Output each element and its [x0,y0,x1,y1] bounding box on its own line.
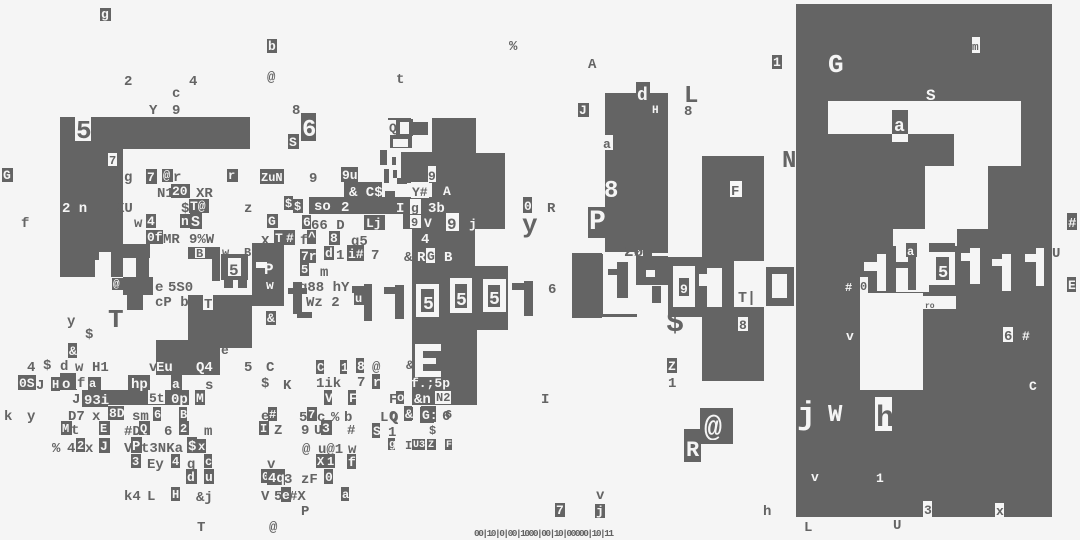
svg-text:4: 4 [172,455,179,469]
svg-text:N: N [782,148,796,175]
svg-text:I: I [260,422,267,436]
svg-text:$: $ [43,358,51,374]
svg-text:$: $ [285,197,292,211]
svg-text:d: d [60,359,68,375]
svg-text:f: f [348,455,356,470]
svg-text:S: S [191,214,200,231]
svg-text:XU: XU [116,201,133,217]
svg-text:T: T [108,305,124,335]
svg-text:MR: MR [163,232,180,248]
svg-text:e: e [155,280,163,296]
svg-text:9: 9 [309,171,317,187]
svg-text:so: so [314,199,331,215]
svg-text:v: v [846,329,854,344]
svg-text:2 n: 2 n [62,201,87,217]
svg-text:5: 5 [76,116,92,146]
svg-text:2: 2 [341,200,349,216]
svg-text:L: L [380,410,388,426]
svg-text:F: F [731,184,739,200]
svg-text:t: t [396,72,404,88]
svg-text:x: x [85,441,94,457]
svg-text:f: f [21,216,29,232]
svg-text:P: P [264,261,274,279]
svg-text:$: $ [85,327,93,343]
svg-text:I: I [541,392,549,408]
svg-text:1: 1 [336,248,344,264]
svg-text:d: d [637,86,648,106]
svg-text:R: R [686,438,700,463]
svg-text:m: m [320,265,328,281]
svg-text:2: 2 [180,422,187,436]
svg-text:y: y [67,314,76,330]
svg-text:#: # [1068,216,1076,232]
svg-text:4: 4 [27,360,35,376]
svg-text:9%W: 9%W [189,232,215,248]
svg-text:Q: Q [140,422,147,436]
svg-text:6: 6 [164,424,172,440]
svg-text:0: 0 [325,470,333,485]
svg-text:&: & [404,250,413,266]
svg-text:o: o [397,391,404,405]
svg-text:C: C [317,361,324,375]
svg-text:n: n [181,214,189,229]
svg-text:J: J [579,103,587,118]
svg-text:w: w [404,153,411,165]
svg-text:@: @ [113,279,120,291]
svg-text:y: y [27,409,36,425]
svg-text:5: 5 [938,264,948,283]
svg-text:&: & [405,407,413,422]
svg-text:Q: Q [390,410,398,426]
svg-text:h: h [876,402,894,436]
svg-text:R: R [417,250,426,266]
svg-text:9: 9 [172,103,180,119]
svg-text:Q: Q [389,121,397,136]
svg-text:g: g [411,201,419,216]
svg-text:Z: Z [668,359,676,374]
svg-text:6: 6 [548,282,556,298]
svg-text:v: v [149,360,158,376]
svg-text:4: 4 [147,214,155,229]
svg-text:u: u [205,470,213,485]
svg-text:G: G [828,50,844,80]
svg-text:i#: i# [348,247,364,262]
svg-text:w: w [134,216,143,232]
svg-text:8: 8 [330,231,338,246]
svg-text:6: 6 [445,408,452,422]
svg-text:cP b: cP b [155,295,189,311]
svg-text:6: 6 [1004,329,1012,345]
svg-text:9: 9 [301,423,309,439]
svg-text:$: $ [666,307,684,341]
svg-text:S: S [289,135,297,150]
svg-text:A: A [443,184,451,199]
svg-text:h: h [763,504,771,520]
svg-text:0S: 0S [19,376,35,391]
svg-text:T@: T@ [190,199,206,214]
svg-text:H: H [172,488,179,502]
svg-text:k4: k4 [124,489,141,505]
svg-text:H: H [52,378,59,392]
svg-text:T|: T| [738,290,756,307]
svg-text:R: R [547,201,556,217]
svg-text:z: z [244,201,252,217]
svg-text:I: I [405,439,412,453]
svg-text:@: @ [163,169,170,183]
svg-text:2: 2 [77,439,84,453]
svg-text:U: U [1052,246,1060,262]
svg-text:@: @ [267,70,276,86]
svg-text:3b: 3b [428,201,445,217]
svg-text:B: B [180,408,187,422]
svg-text:J: J [36,378,44,394]
svg-text:V: V [325,391,333,406]
svg-text:C: C [266,360,275,376]
svg-text:T: T [204,297,212,313]
svg-text:8D: 8D [109,406,125,421]
svg-text:J: J [100,439,108,454]
svg-text:5: 5 [456,291,467,311]
svg-text:5S0: 5S0 [168,280,193,296]
svg-text:2: 2 [124,74,132,90]
svg-text:hp: hp [131,377,148,393]
svg-text:2ø: 2ø [624,243,643,261]
svg-text:x: x [198,440,205,454]
svg-text:G: G [3,168,11,183]
svg-text:8: 8 [739,318,747,333]
svg-text:f.;5p: f.;5p [411,376,450,391]
svg-text:9: 9 [428,169,436,184]
svg-text:Z: Z [274,423,282,439]
svg-text:#X: #X [289,489,306,505]
svg-text:U: U [893,518,901,534]
svg-text:&: & [267,311,275,326]
svg-text:j: j [469,217,477,232]
svg-text:5: 5 [423,295,434,315]
svg-text:7: 7 [371,248,379,264]
svg-text:T: T [197,520,205,536]
svg-text:t: t [71,423,79,439]
svg-text:@: @ [302,442,311,458]
svg-text:I: I [396,201,404,217]
svg-text:9u: 9u [342,168,358,183]
svg-text:20: 20 [172,184,188,199]
svg-text:5: 5 [301,263,308,277]
svg-text:4q: 4q [268,471,285,487]
svg-text:b: b [268,39,276,54]
svg-text:P: P [301,504,309,520]
svg-text:M: M [196,391,204,406]
svg-text:d: d [187,470,195,485]
svg-text:5t: 5t [149,391,165,406]
svg-text:&: & [406,358,414,373]
svg-text:8: 8 [684,104,692,120]
svg-text:E: E [1068,278,1076,293]
svg-text:Q4: Q4 [196,360,213,376]
svg-text:a: a [907,245,914,259]
svg-text:#: # [845,281,852,295]
svg-text:c: c [205,455,212,469]
svg-text:93i: 93i [84,393,109,409]
svg-text:c: c [172,86,180,102]
svg-text:7: 7 [308,408,315,422]
svg-text:A: A [588,57,597,73]
svg-text:6: 6 [154,408,161,422]
svg-text:&j: &j [196,490,213,506]
svg-text:3: 3 [924,503,932,518]
svg-text:V: V [424,216,432,231]
svg-text:B: B [444,250,453,266]
svg-text:3: 3 [322,421,330,436]
svg-text:Y#: Y# [412,185,428,200]
svg-text:1: 1 [341,361,348,375]
svg-text:6: 6 [302,117,316,144]
svg-text:H1: H1 [92,360,109,376]
svg-text:8: 8 [357,359,365,374]
svg-text:s: s [205,378,213,394]
svg-text:J: J [72,392,80,408]
svg-text:W: W [828,402,843,429]
svg-text:a: a [894,117,905,137]
svg-text:P: P [589,207,606,238]
svg-text:g: g [389,439,396,451]
svg-text:e: e [221,343,229,358]
svg-text:N2: N2 [436,391,450,405]
svg-text:w: w [266,278,274,293]
svg-text:5: 5 [244,360,252,376]
svg-text:C: C [1029,379,1037,394]
svg-text:Ey: Ey [147,457,164,473]
svg-text:j: j [596,504,604,519]
svg-text:7: 7 [109,154,116,168]
svg-text:00|10|0|00|1000|00|10|00000|10: 00|10|0|00|1000|00|10|00000|10|11 [474,528,614,539]
svg-text:9: 9 [411,216,418,230]
svg-text:f: f [77,376,85,392]
svg-text:M: M [62,422,69,436]
svg-text:u: u [355,292,362,306]
svg-text:a: a [172,377,180,392]
svg-text:g: g [101,7,109,22]
svg-text:5: 5 [489,290,500,310]
svg-text:Y: Y [149,103,158,119]
svg-text:7: 7 [556,503,564,518]
svg-text:o: o [62,377,70,393]
svg-text:%: % [52,441,61,457]
svg-text:d: d [325,246,333,261]
svg-text:^: ^ [308,230,316,245]
svg-text:&n: &n [414,392,431,408]
svg-text:a: a [603,137,611,152]
svg-text:X: X [317,455,325,469]
svg-text:1: 1 [668,376,676,392]
svg-text:V: V [261,489,270,505]
svg-text:ro: ro [925,302,935,311]
svg-text:9: 9 [680,282,688,297]
svg-text:1: 1 [773,55,781,70]
svg-text:0p: 0p [171,392,188,408]
svg-text:zF: zF [301,472,318,488]
svg-text:%: % [331,410,340,426]
svg-text:&: & [69,344,77,359]
svg-text:E: E [100,422,107,436]
svg-text:a: a [342,488,349,502]
svg-text:g: g [124,170,132,186]
svg-text:1ik: 1ik [316,376,341,392]
svg-text:a: a [89,377,96,391]
svg-text:%: % [509,39,518,55]
svg-text:Eu: Eu [156,360,173,376]
svg-text:3: 3 [132,455,139,469]
svg-text:B: B [196,247,203,261]
svg-text:5: 5 [229,262,239,280]
svg-text:4: 4 [421,232,429,248]
svg-text:m: m [204,424,212,440]
svg-text:1: 1 [327,455,334,469]
svg-text:9: 9 [447,216,457,234]
svg-text:v: v [596,488,605,504]
svg-text:@: @ [269,520,278,536]
svg-text:H: H [652,105,659,117]
svg-text:7: 7 [147,170,155,185]
svg-text:P: P [132,439,140,455]
svg-text:r: r [228,169,235,183]
svg-text:x: x [996,504,1004,519]
svg-text:L: L [804,520,812,536]
svg-text:$: $ [429,424,436,438]
svg-text:G: G [427,249,435,264]
svg-text:ZuN: ZuN [261,171,283,185]
svg-text:8: 8 [604,178,618,205]
svg-text:#: # [269,408,276,422]
svg-text:0f: 0f [147,230,163,245]
svg-text:S: S [926,87,936,105]
svg-text:3: 3 [284,472,292,488]
svg-text:q88 hY: q88 hY [299,280,350,296]
svg-text:L: L [147,489,155,505]
svg-text:Wz 2: Wz 2 [306,295,340,311]
svg-text:Lj: Lj [366,216,382,231]
svg-text:#: # [347,423,355,439]
svg-text:m: m [972,42,979,54]
svg-text:G:: G: [422,408,438,423]
svg-text:y: y [522,210,538,240]
svg-text:4: 4 [189,74,197,90]
svg-text:7: 7 [357,375,365,391]
svg-text:6: 6 [303,215,311,230]
svg-text:K: K [283,378,292,394]
svg-text:$: $ [188,439,196,455]
svg-text:1: 1 [876,471,884,486]
svg-text:Z: Z [428,440,434,451]
svg-text:7r: 7r [301,249,317,264]
svg-text:0: 0 [860,280,867,294]
svg-text:4: 4 [67,441,75,457]
svg-text:@: @ [372,360,381,376]
svg-text:F: F [349,391,357,406]
svg-text:r: r [373,375,381,390]
svg-text:F: F [446,440,452,451]
svg-text:G: G [268,214,276,229]
svg-text:S: S [373,424,381,439]
svg-text:$: $ [261,376,269,392]
svg-text:#: # [1022,329,1030,344]
svg-text:v: v [811,470,819,485]
svg-text:8: 8 [292,103,300,119]
svg-text:k: k [4,409,12,425]
svg-text:#: # [286,231,294,246]
svg-text:$: $ [294,200,301,214]
svg-text:U3: U3 [413,440,425,451]
svg-text:j: j [797,397,816,434]
